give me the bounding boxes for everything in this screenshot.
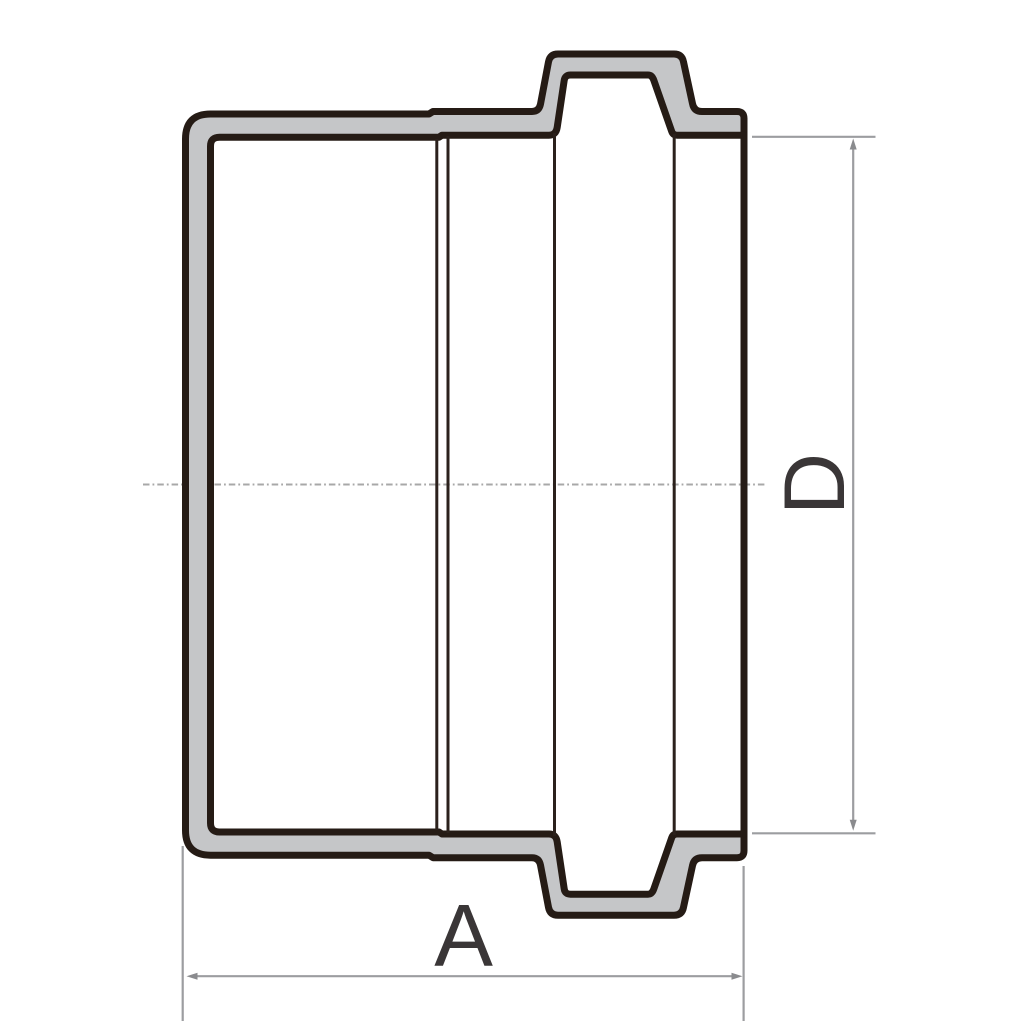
svg-text:A: A [434,886,493,985]
svg-text:D: D [767,453,863,515]
